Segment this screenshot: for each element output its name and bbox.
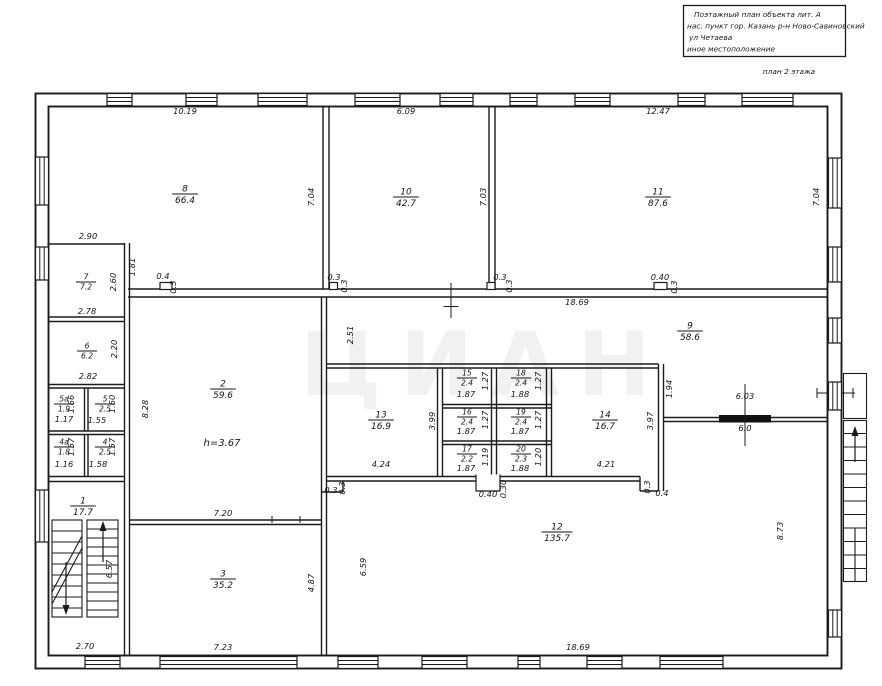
door-gap-room12 — [476, 475, 500, 483]
floor-plan-drawing: ЦИАН Поэтажный план объекта лит. А нас. … — [0, 0, 882, 686]
svg-text:6: 6 — [85, 342, 90, 351]
dimension-label: 1.58 — [89, 459, 107, 469]
dimension-label: 2.60 — [108, 273, 118, 291]
dimension-label: 2.51 — [345, 326, 355, 344]
dimension-label: 18.69 — [565, 297, 589, 307]
dimension-label: 1.88 — [511, 389, 529, 399]
dimension-label: 2.90 — [79, 231, 97, 241]
dimension-label: 1.57 — [66, 437, 76, 456]
windows-right-wall — [829, 158, 842, 637]
dimension-label: 7.04 — [811, 188, 821, 206]
door-room10-right — [487, 283, 495, 290]
svg-text:16: 16 — [462, 408, 472, 417]
room-label-11: 1187.6 — [645, 188, 671, 210]
svg-text:59.6: 59.6 — [213, 391, 233, 401]
stair-landing — [844, 374, 867, 419]
dimension-label: 1.19 — [480, 448, 490, 466]
dimension-label: 3.99 — [427, 412, 437, 430]
dimension-label: 8.28 — [140, 400, 150, 418]
door-room10-left — [330, 283, 338, 290]
dimension-label: 1.66 — [66, 395, 76, 413]
dimension-label: 1.87 — [511, 426, 530, 436]
dimension-label: 6.57 — [104, 559, 114, 578]
svg-text:12: 12 — [551, 523, 563, 533]
dimension-label: 0.3 — [669, 280, 679, 293]
dimension-label: 7.20 — [214, 508, 232, 518]
dimension-label: 10.19 — [173, 106, 197, 116]
dimension-label: 0.3 — [168, 280, 178, 293]
dimension-label: 1.27 — [480, 410, 490, 429]
dimension-label: 1.20 — [533, 448, 543, 466]
title-line-2: нас. пункт гор. Казань р-н Ново-Савиновс… — [687, 22, 865, 31]
svg-text:17: 17 — [462, 445, 472, 454]
svg-text:8: 8 — [182, 185, 188, 195]
svg-text:1: 1 — [80, 497, 86, 507]
svg-text:58.6: 58.6 — [680, 333, 700, 343]
svg-text:9: 9 — [687, 322, 693, 332]
dimension-label: 7.03 — [478, 188, 488, 206]
svg-text:6.2: 6.2 — [81, 352, 93, 361]
dimension-label: 2.20 — [109, 340, 119, 358]
dimension-label: 18.69 — [566, 642, 590, 652]
dimension-label: 1.17 — [55, 414, 74, 424]
title-line-4: иное местоположение — [687, 45, 776, 54]
dimension-label: 0.4 — [655, 488, 668, 498]
dimension-label: 6.0 — [738, 423, 751, 433]
dimension-label: 8.73 — [775, 522, 785, 540]
room-label-8: 866.4 — [172, 185, 198, 207]
svg-text:16.7: 16.7 — [595, 422, 615, 432]
dimension-label: 7.04 — [306, 188, 316, 206]
svg-text:20: 20 — [516, 445, 526, 454]
dimension-label: 1.87 — [457, 426, 476, 436]
dimension-label: 0.4 — [156, 271, 169, 281]
svg-text:2.4: 2.4 — [461, 379, 473, 388]
dimension-label: 1.60 — [107, 395, 117, 413]
title-block: Поэтажный план объекта лит. А нас. пункт… — [684, 6, 865, 77]
plan-caption: план 2 этажа — [763, 67, 816, 76]
dimension-label: 4.24 — [372, 459, 390, 469]
room-label-9: 958.6 — [677, 322, 703, 344]
svg-text:7.2: 7.2 — [80, 283, 92, 292]
svg-text:14: 14 — [599, 411, 611, 421]
dimension-label: 1.87 — [457, 463, 476, 473]
dimension-label: 3.97 — [645, 411, 655, 430]
windows-left-wall — [36, 157, 49, 542]
windows-top-wall — [107, 94, 793, 106]
svg-text:15: 15 — [462, 369, 472, 378]
dimension-label: 1.55 — [88, 415, 106, 425]
dimension-label: 1.94 — [664, 380, 674, 398]
svg-text:13: 13 — [375, 411, 387, 421]
dimension-label: 1.57 — [107, 437, 117, 456]
dimension-label: 0.3 — [642, 480, 652, 493]
staircase-exterior — [844, 374, 867, 582]
dimension-label: 6.09 — [397, 106, 415, 116]
dimension-label: 6.03 — [736, 391, 754, 401]
dimension-label: 1.27 — [480, 371, 490, 390]
dimension-label: 0.40 — [479, 489, 497, 499]
dimension-label: 7.23 — [214, 642, 232, 652]
windows-bottom-wall — [85, 657, 723, 669]
dimension-label: 1.87 — [457, 389, 476, 399]
svg-text:11: 11 — [652, 188, 663, 198]
svg-text:3: 3 — [220, 570, 226, 580]
door-room11 — [654, 283, 667, 290]
svg-text:35.2: 35.2 — [213, 581, 233, 591]
floor-plan-page: ЦИАН Поэтажный план объекта лит. А нас. … — [0, 0, 882, 686]
dimension-label: 1.81 — [127, 258, 137, 276]
dimension-label: 1.88 — [511, 463, 529, 473]
room-label-17: 172.2 — [457, 445, 477, 464]
dimension-label: 0.3 — [337, 481, 347, 494]
dimension-label: 12.47 — [646, 106, 670, 116]
dimension-label: 0.3 — [504, 279, 514, 292]
dimension-label: 1.16 — [55, 459, 73, 469]
title-line-3: ул Четаева — [688, 33, 733, 42]
room-label-7: 77.2 — [76, 273, 96, 292]
svg-text:42.7: 42.7 — [396, 199, 416, 209]
room-label-10: 1042.7 — [393, 188, 419, 210]
dimension-label: 2.70 — [76, 641, 94, 651]
svg-text:7: 7 — [84, 273, 89, 282]
room-label-1: 117.7 — [70, 497, 96, 519]
svg-text:87.6: 87.6 — [648, 199, 668, 209]
title-line-1: Поэтажный план объекта лит. А — [694, 10, 821, 19]
dimension-label: 0.3 — [324, 485, 337, 495]
svg-text:10: 10 — [400, 188, 412, 198]
svg-text:2: 2 — [220, 380, 226, 390]
room-label-12: 12135.7 — [542, 523, 573, 545]
dimension-label: 4.87 — [306, 573, 316, 592]
dimension-label: 0.30 — [498, 480, 508, 498]
svg-text:66.4: 66.4 — [175, 196, 195, 206]
room-label-2: 259.6 — [210, 380, 236, 402]
dimension-label: 2.82 — [79, 371, 97, 381]
svg-text:17.7: 17.7 — [73, 508, 93, 518]
exterior-stair-up-arrow — [852, 426, 859, 462]
dimension-label: 1.27 — [533, 371, 543, 390]
svg-text:16.9: 16.9 — [371, 422, 391, 432]
svg-text:135.7: 135.7 — [544, 534, 570, 544]
room-label-20: 202.3 — [511, 445, 531, 464]
svg-text:19: 19 — [516, 408, 526, 417]
room-label-3: 335.2 — [210, 570, 236, 592]
room-label-6: 66.2 — [77, 342, 97, 361]
dimension-label: 2.78 — [78, 306, 96, 316]
svg-text:18: 18 — [516, 369, 526, 378]
dimension-label: 0.3 — [339, 279, 349, 292]
dimension-label: 0.40 — [651, 272, 669, 282]
dimension-label: 1.27 — [533, 410, 543, 429]
ceiling-height-label: h=3.67 — [204, 438, 242, 449]
dimension-label: 4.21 — [597, 459, 615, 469]
svg-text:2.4: 2.4 — [515, 379, 527, 388]
dimension-label: 6.59 — [358, 558, 368, 576]
